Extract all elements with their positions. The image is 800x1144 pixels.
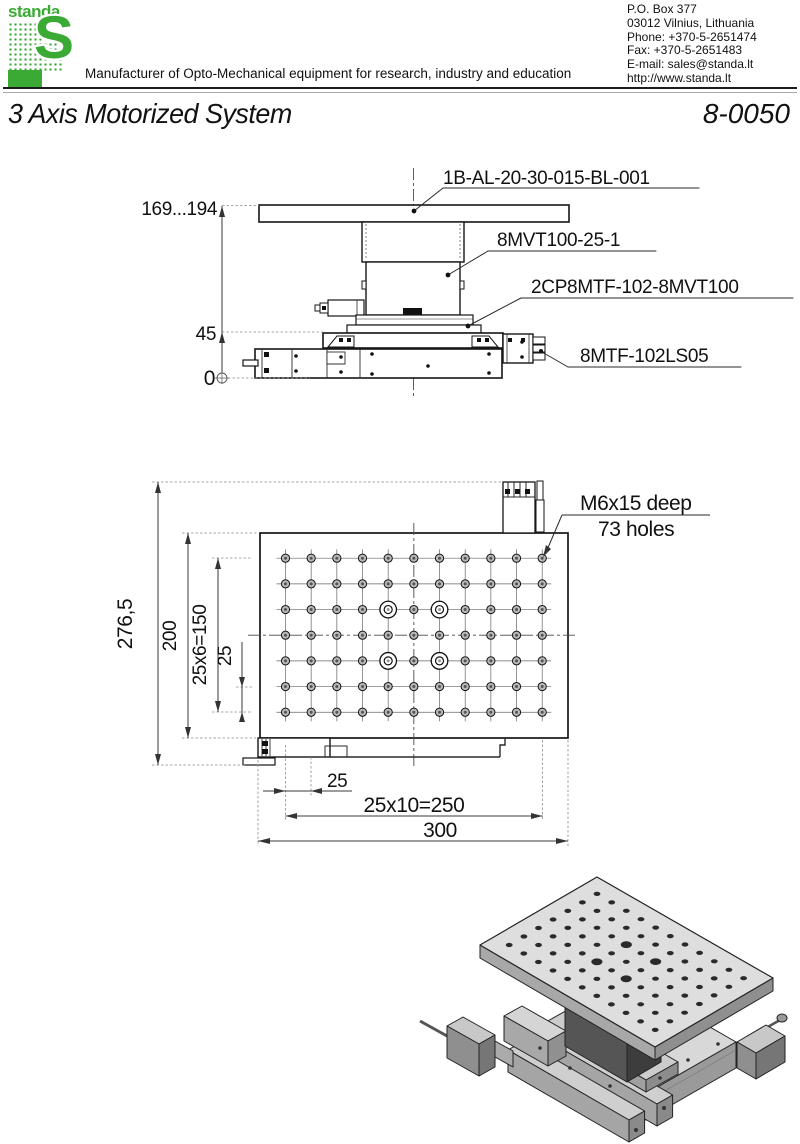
dim-plate-depth: 200	[160, 621, 181, 652]
iso-hole	[579, 968, 586, 972]
iso-hole	[608, 917, 615, 921]
isometric-view	[420, 877, 787, 1142]
iso-left-motor	[420, 1017, 513, 1076]
label-adapter-plate: 2CP8MTF-102-8MVT100	[531, 277, 739, 298]
iso-hole	[608, 900, 615, 904]
iso-hole	[711, 959, 718, 963]
iso-hole	[608, 968, 615, 972]
iso-hole	[608, 951, 615, 955]
iso-hole	[593, 994, 600, 998]
iso-hole	[579, 985, 586, 989]
iso-hole	[696, 951, 703, 955]
iso-hole	[550, 934, 557, 938]
label-vertical-stage: 8MVT100-25-1	[497, 230, 620, 251]
iso-hole	[579, 917, 586, 921]
iso-hole	[740, 976, 747, 980]
iso-hole	[608, 934, 615, 938]
iso-hole	[652, 1011, 659, 1015]
hole-note-line2: 73 holes	[598, 518, 674, 541]
xy-stage-side	[243, 333, 545, 378]
iso-hole	[594, 909, 601, 913]
iso-hole	[521, 934, 528, 938]
iso-hole	[591, 958, 602, 965]
label-xy-stage: 8MTF-102LS05	[580, 346, 708, 367]
iso-hole	[638, 934, 645, 938]
technical-drawing: 169...194 45 0 1B-AL-20-30-015-BL-001 8M…	[0, 0, 800, 1144]
iso-hole	[564, 926, 571, 930]
top-view-stage-below	[243, 738, 505, 765]
iso-hole	[535, 943, 542, 947]
iso-hole	[594, 977, 601, 981]
iso-hole	[579, 900, 586, 904]
iso-hole	[623, 960, 630, 964]
iso-hole	[652, 943, 659, 947]
iso-hole	[667, 934, 674, 938]
iso-hole	[652, 994, 659, 998]
iso-hole	[594, 892, 601, 896]
iso-hole	[637, 1019, 644, 1023]
iso-hole	[594, 943, 601, 947]
dim-overall-depth: 276,5	[114, 599, 137, 650]
iso-hole	[623, 926, 630, 930]
iso-hole	[681, 1011, 688, 1015]
datasheet-page: standa S Manufacturer of Opto-Mechanical…	[0, 0, 800, 1144]
iso-hole	[535, 926, 542, 930]
iso-hole	[506, 943, 513, 947]
iso-hole	[638, 968, 645, 972]
iso-hole	[579, 951, 586, 955]
iso-hole	[667, 968, 674, 972]
hole-note-line1: M6x15 deep	[580, 492, 692, 515]
dim-row-pitch: 25	[215, 646, 236, 666]
iso-hole	[696, 968, 703, 972]
iso-hole	[638, 951, 645, 955]
iso-hole	[623, 909, 630, 913]
iso-hole	[652, 977, 659, 981]
iso-hole	[667, 1019, 674, 1023]
iso-hole	[652, 1028, 659, 1032]
iso-hole	[594, 926, 601, 930]
iso-hole	[682, 959, 689, 963]
label-breadboard: 1B-AL-20-30-015-BL-001	[443, 168, 650, 189]
dim-col-pitch: 25	[327, 771, 347, 792]
iso-hole	[682, 942, 689, 946]
iso-hole	[564, 977, 571, 981]
iso-hole	[696, 985, 703, 989]
iso-hole	[681, 994, 688, 998]
dim-mid-height: 45	[196, 324, 216, 345]
dim-row-span: 25x6=150	[190, 605, 211, 686]
dim-base-level: 0	[204, 367, 215, 390]
iso-hole	[652, 926, 659, 930]
iso-hole	[650, 958, 661, 965]
iso-hole	[608, 985, 615, 989]
side-view: 169...194 45 0 1B-AL-20-30-015-BL-001 8M…	[141, 168, 793, 398]
iso-hole	[638, 917, 645, 921]
iso-hole	[667, 985, 674, 989]
iso-hole	[667, 951, 674, 955]
dim-plate-width: 300	[423, 819, 457, 842]
iso-hole	[726, 985, 733, 989]
dim-height-range: 169...194	[141, 199, 217, 220]
iso-hole	[621, 941, 632, 948]
iso-hole	[637, 985, 644, 989]
iso-hole	[696, 1002, 703, 1006]
iso-hole	[550, 917, 557, 921]
iso-hole	[711, 993, 718, 997]
iso-hole	[564, 909, 571, 913]
iso-hole	[608, 1002, 615, 1006]
iso-hole	[726, 968, 733, 972]
iso-hole	[623, 994, 630, 998]
iso-hole	[579, 934, 586, 938]
iso-hole	[711, 976, 718, 980]
iso-hole	[667, 1002, 674, 1006]
iso-hole	[637, 1002, 644, 1006]
iso-hole	[623, 1011, 630, 1015]
iso-hole	[520, 951, 527, 955]
iso-hole	[681, 976, 688, 980]
iso-hole	[621, 975, 632, 982]
iso-hole	[564, 943, 571, 947]
iso-right-motor	[737, 1014, 787, 1079]
iso-hole	[550, 968, 557, 972]
iso-hole	[550, 951, 557, 955]
vertical-stage-motor	[315, 300, 364, 316]
top-view-motor	[503, 481, 544, 533]
dim-col-span: 25x10=250	[364, 794, 465, 817]
top-view: M6x15 deep 73 holes	[114, 481, 710, 846]
iso-hole	[564, 960, 571, 964]
iso-hole	[535, 960, 542, 964]
